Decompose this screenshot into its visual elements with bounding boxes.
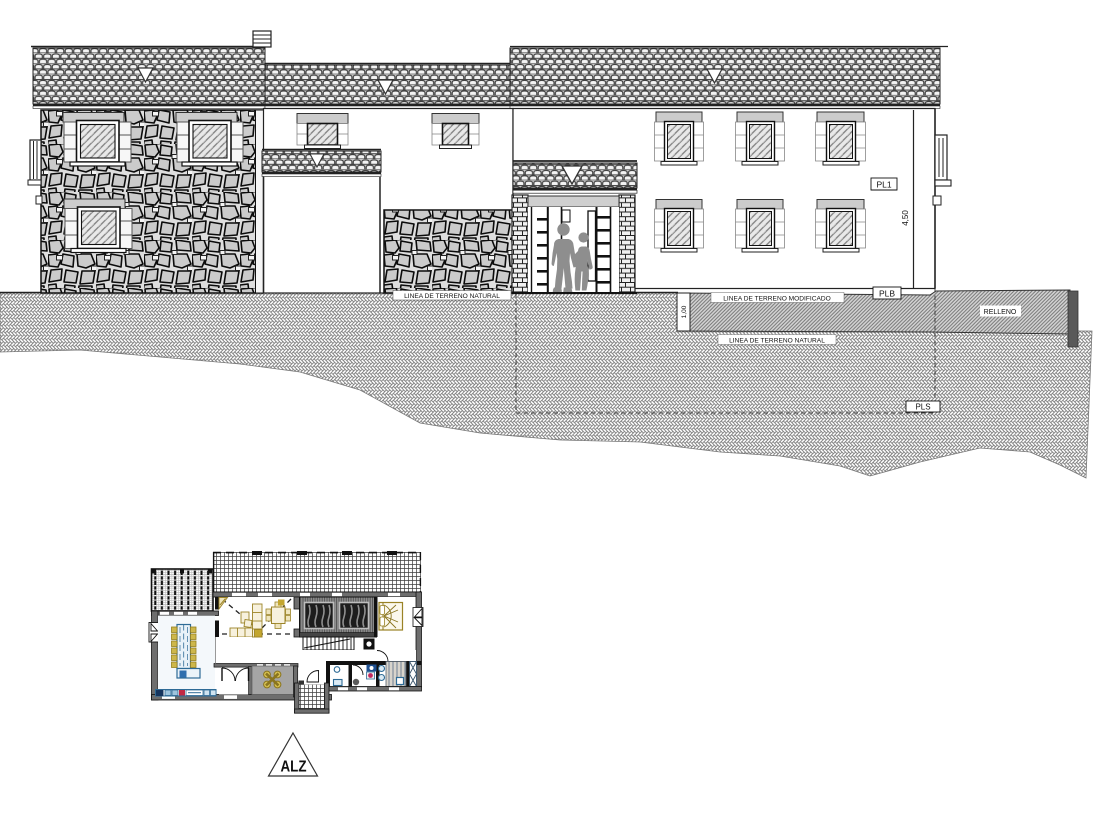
svg-text:PLS: PLS [915,403,930,412]
svg-text:LINEA DE TERRENO MODIFICADO: LINEA DE TERRENO MODIFICADO [723,296,831,303]
svg-text:LINEA DE TERRENO NATURAL: LINEA DE TERRENO NATURAL [729,338,825,345]
svg-text:PLB: PLB [879,289,895,299]
svg-text:4,50: 4,50 [901,210,910,226]
svg-text:PL1: PL1 [876,180,891,190]
svg-text:LINEA DE TERRENO NATURAL: LINEA DE TERRENO NATURAL [404,293,500,300]
svg-text:ALZ: ALZ [281,759,307,776]
svg-text:1,00: 1,00 [681,305,688,318]
svg-text:RELLENO: RELLENO [984,309,1017,316]
